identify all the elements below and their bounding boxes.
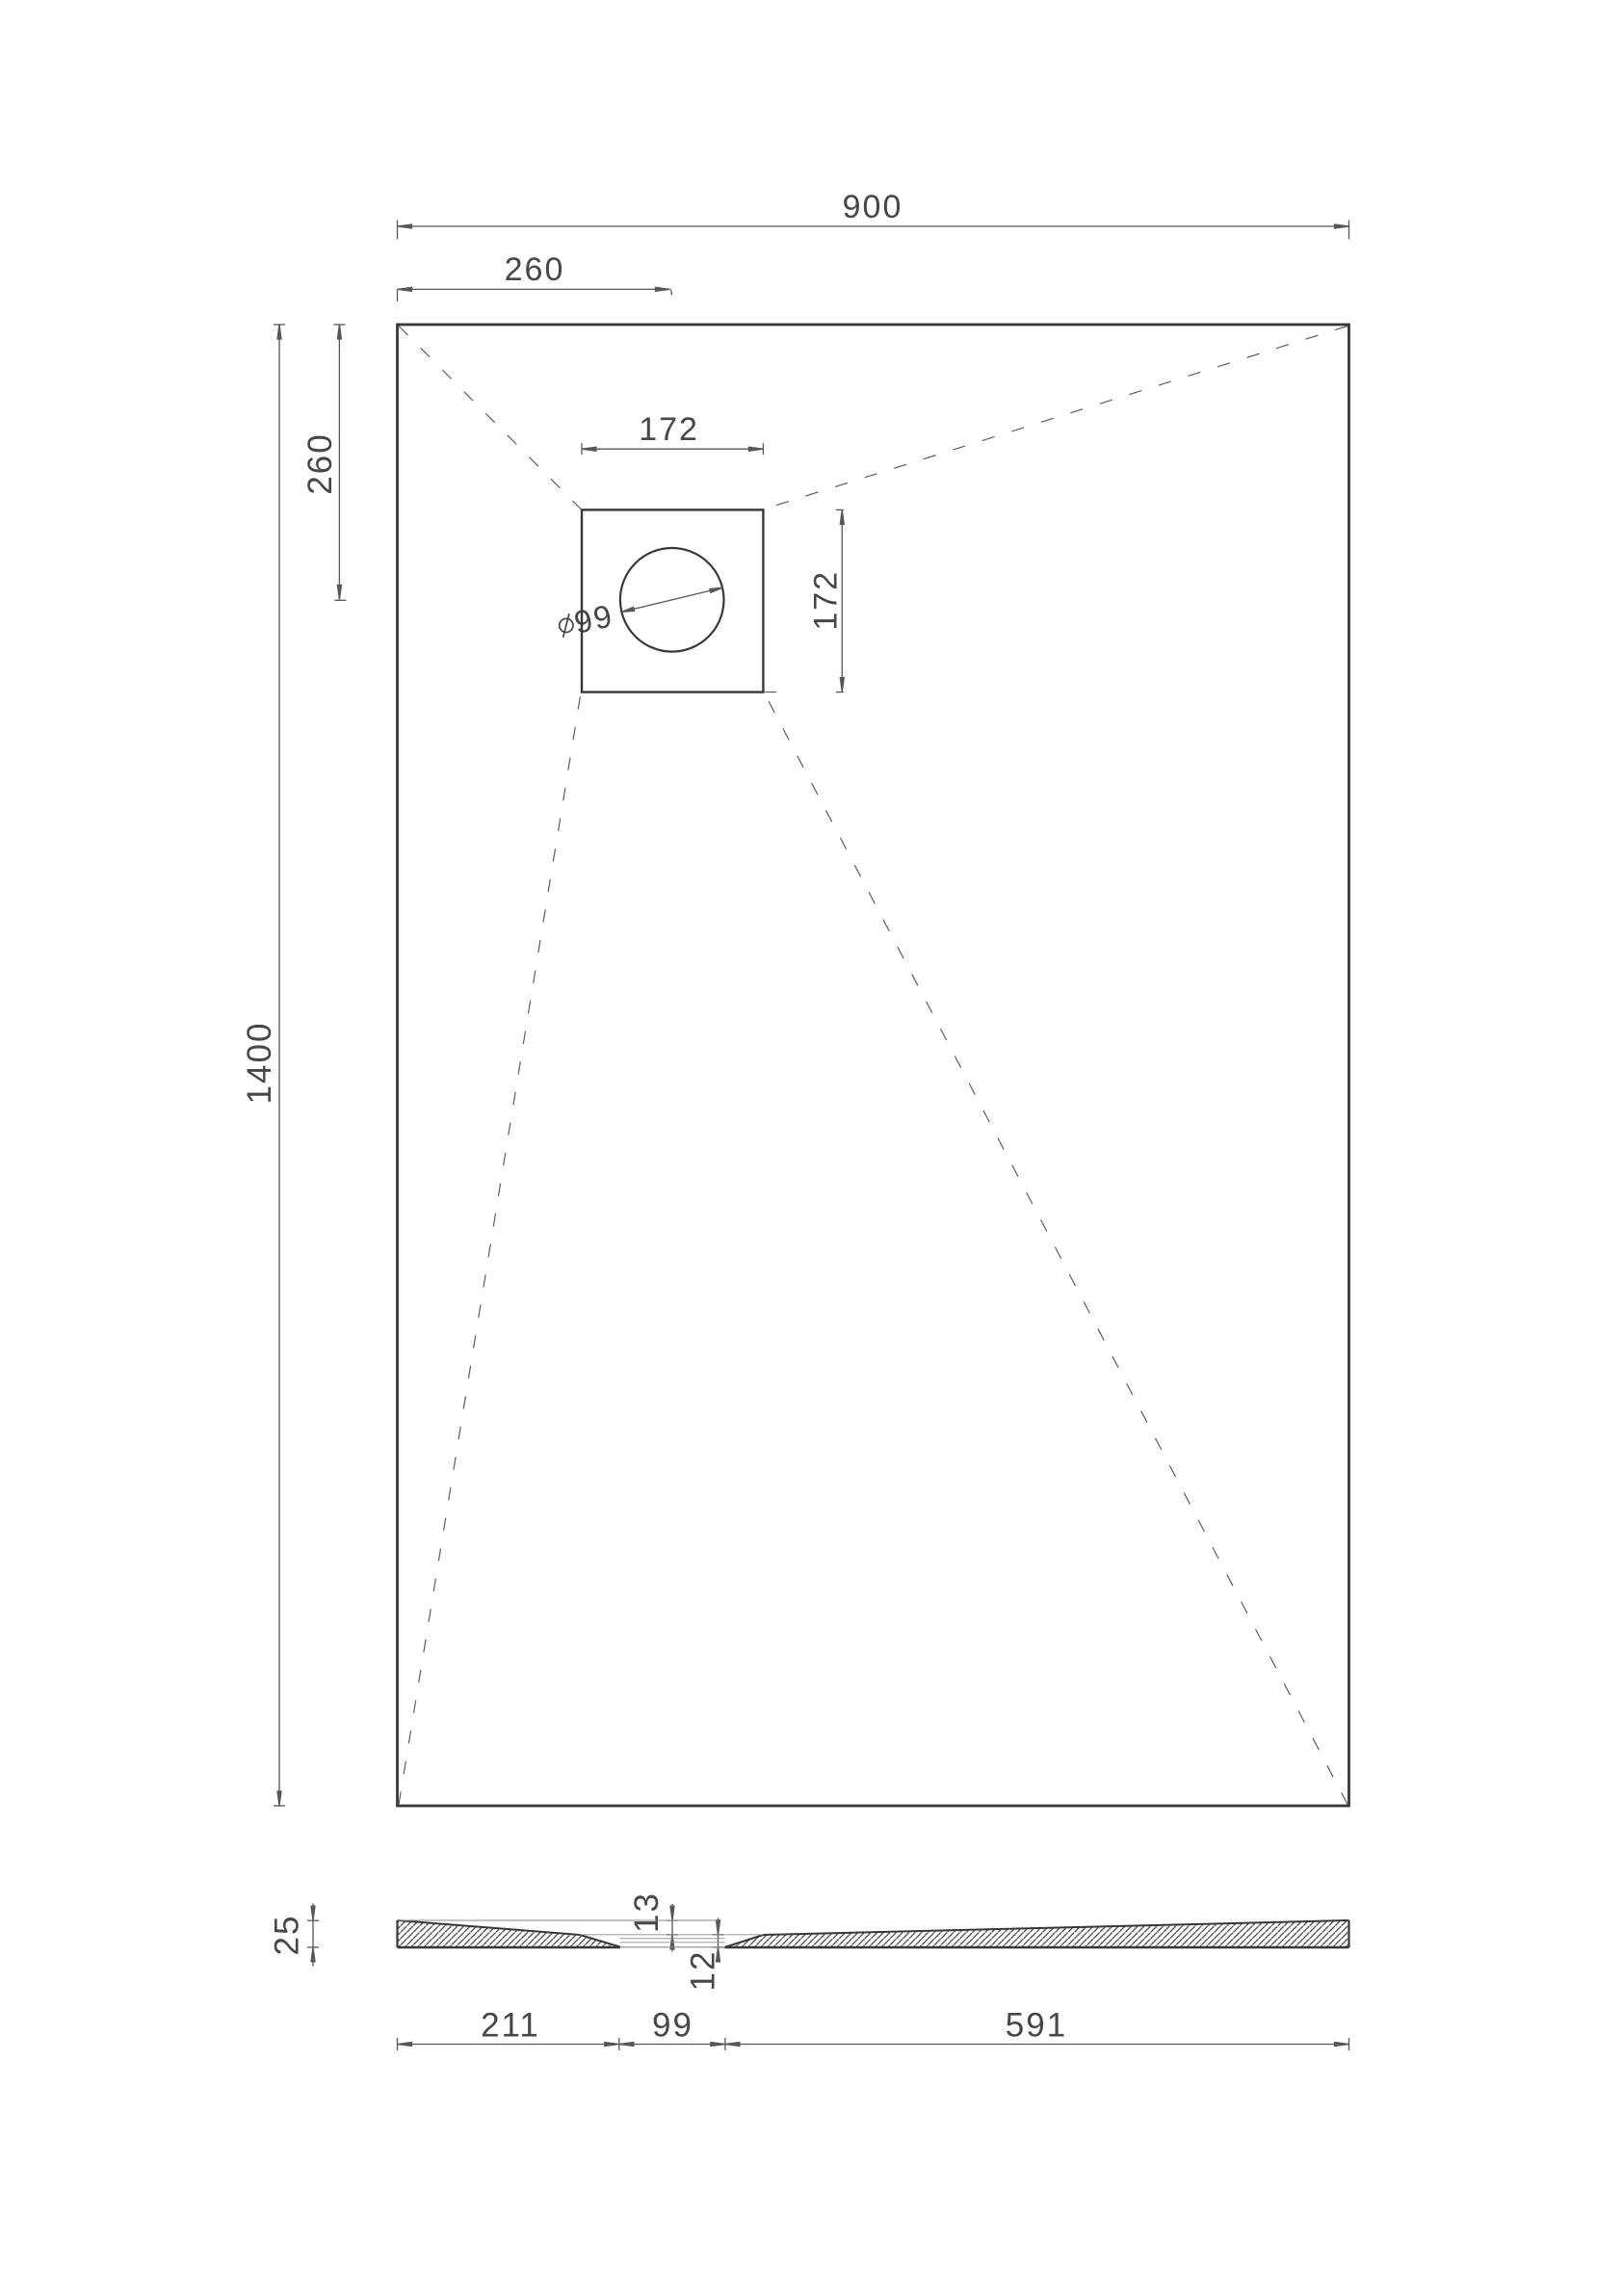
svg-text:172: 172 <box>808 570 845 631</box>
svg-text:591: 591 <box>1006 2007 1067 2045</box>
svg-text:25: 25 <box>269 1915 306 1956</box>
svg-text:260: 260 <box>301 432 339 494</box>
svg-text:900: 900 <box>843 189 903 225</box>
svg-text:1400: 1400 <box>241 1022 278 1105</box>
svg-text:12: 12 <box>685 1950 722 1992</box>
svg-text:211: 211 <box>481 2007 540 2045</box>
svg-text:260: 260 <box>505 251 565 288</box>
svg-text:13: 13 <box>628 1892 666 1933</box>
svg-text:99: 99 <box>652 2007 693 2045</box>
svg-text:172: 172 <box>639 411 699 448</box>
